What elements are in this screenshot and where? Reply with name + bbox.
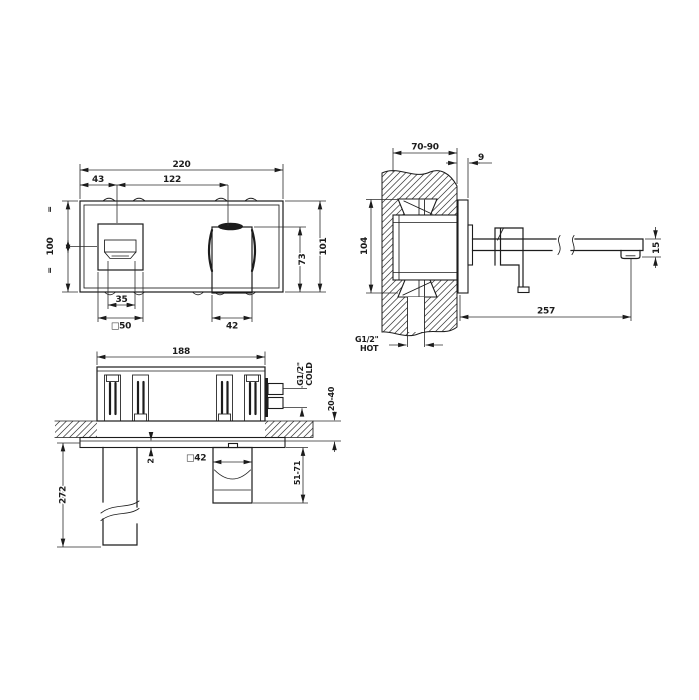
dim-controls-spacing: 122 — [163, 175, 181, 185]
dim-body-height: 101 — [319, 237, 329, 255]
label-hot-connection: G1/2" — [355, 335, 379, 344]
rough-in-body — [393, 215, 457, 280]
label-cold-connection: G1/2" — [296, 362, 305, 386]
label-cold: COLD — [305, 362, 314, 386]
mounting-rail — [217, 375, 233, 421]
dim-body-width: 188 — [172, 347, 190, 357]
wall-strip-right — [265, 421, 313, 438]
wall-strip-left — [55, 421, 97, 438]
cold-connection-stub — [268, 384, 283, 395]
dim-control-offset: 43 — [92, 175, 104, 185]
plan-view: 188 G1/2" COLD 20-40 □42 2 272 51-71 — [55, 347, 341, 547]
mounting-rail — [133, 375, 149, 421]
dim-rough-body-height: 104 — [360, 237, 370, 255]
dim-spout-length: 272 — [59, 486, 69, 504]
side-view: 70-90 9 104 257 15 G1/2" HOT — [355, 143, 662, 354]
dim-finished-wall-range: 20-40 — [327, 386, 336, 411]
dim-handle-section-size: □42 — [186, 454, 206, 464]
dim-overall-width: 220 — [172, 160, 190, 170]
extension-lines — [62, 164, 326, 322]
handle-plan-detail — [215, 470, 251, 490]
dim-handle-width: 42 — [226, 322, 238, 332]
handle-lever-notch — [229, 444, 238, 448]
faceplate-inner-edge — [84, 205, 279, 288]
dim-spout-reach: 257 — [537, 307, 555, 317]
mounting-rail — [105, 375, 121, 421]
label-hot: HOT — [360, 344, 379, 353]
spout-flange — [468, 225, 473, 265]
handle-lever-tip — [218, 223, 243, 231]
dim-wall-depth: 70-90 — [411, 143, 439, 153]
dim-plate-height: 100 — [46, 237, 56, 255]
cold-connection-stub — [268, 398, 283, 409]
mounting-rail — [245, 375, 261, 421]
technical-drawing-canvas: 220 43 122 100 = = 73 101 35 □50 42 — [0, 0, 699, 700]
rough-body-plan — [97, 367, 265, 421]
dim-plate-gap: 2 — [147, 458, 156, 463]
aerator — [621, 251, 640, 259]
mixer-technical-drawing: 220 43 122 100 = = 73 101 35 □50 42 — [0, 0, 699, 700]
dim-trim-thickness: 9 — [478, 153, 484, 163]
handle-lever-foot — [518, 287, 529, 293]
handle-plan — [213, 448, 252, 504]
spout-plan — [103, 448, 137, 546]
volume-control-inner — [105, 240, 137, 252]
volume-control-recess — [105, 252, 137, 259]
wall-plate-side — [458, 200, 468, 293]
equal-mark-top: = — [45, 206, 54, 212]
spout-tube — [473, 239, 644, 251]
front-view: 220 43 122 100 = = 73 101 35 □50 42 — [45, 160, 329, 332]
dim-control-plate-size: □50 — [111, 322, 131, 332]
dim-handle-height: 73 — [298, 253, 308, 265]
spout-break-lines — [101, 501, 139, 521]
dim-handle-projection: 51-71 — [293, 460, 302, 485]
dim-spout-tip-height: 15 — [652, 242, 662, 254]
mixer-handle-outline — [212, 227, 252, 293]
wall-plate-plan — [80, 438, 285, 448]
dim-control-inner-width: 35 — [115, 295, 127, 305]
equal-mark-bottom: = — [45, 267, 54, 273]
spout-break-lines — [558, 236, 574, 255]
hot-supply-channel — [408, 297, 425, 332]
